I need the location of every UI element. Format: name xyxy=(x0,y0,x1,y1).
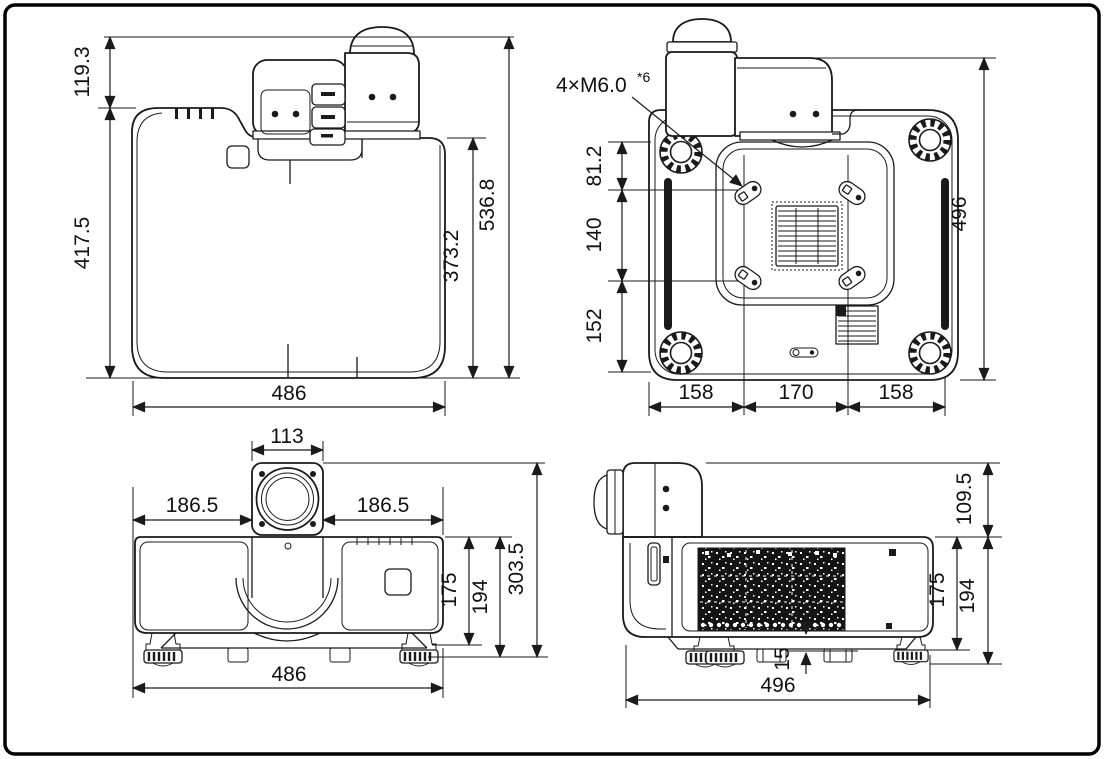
dim-label-left-section: 158 xyxy=(678,381,713,404)
dim-label-side-body-height: 175 xyxy=(926,572,949,607)
dim-label-front-height-with-feet: 194 xyxy=(469,579,492,614)
front-view-lens xyxy=(252,463,323,535)
projector-dimension-drawing: 119.3 417.5 536.8 373.2 486 xyxy=(0,0,1104,759)
bottom-slot-left xyxy=(664,178,672,330)
dim-label-overall-height: 303.5 xyxy=(505,543,528,596)
adjustable-foot xyxy=(706,651,744,667)
foot-ring xyxy=(909,332,951,374)
foot-ring xyxy=(909,119,951,161)
dim-label-side-depth: 496 xyxy=(760,674,795,697)
dim-label-front-body-height: 175 xyxy=(438,572,461,607)
dim-label-lens-protrusion: 119.3 xyxy=(71,47,94,98)
dim-label-lens-width: 113 xyxy=(270,425,303,448)
dim-label-screw-spacing-depth: 140 xyxy=(583,217,606,252)
side-view-lens xyxy=(594,463,702,537)
dim-label-top-width: 486 xyxy=(271,382,306,405)
side-vent-grille xyxy=(698,548,845,630)
dim-label-side-height-with-feet: 194 xyxy=(956,578,979,613)
dim-label-screws-to-rear: 152 xyxy=(583,308,606,343)
dim-label-body-depth: 417.5 xyxy=(71,217,94,270)
adjustable-foot xyxy=(894,650,928,664)
screw-note-superscript: *6 xyxy=(637,69,650,85)
dim-label-left-of-lens: 186.5 xyxy=(166,494,219,517)
dim-label-overall-depth: 536.8 xyxy=(476,179,499,232)
adjustable-foot xyxy=(144,650,182,666)
dim-label-front-to-screws: 81.2 xyxy=(583,146,606,187)
dim-label-rear-depth: 373.2 xyxy=(440,230,463,283)
foot-ring xyxy=(660,332,702,374)
dim-label-lens-rise: 109.5 xyxy=(953,473,976,526)
dim-label-front-width: 486 xyxy=(271,663,306,686)
dim-label-bottom-overall-depth: 496 xyxy=(948,196,971,231)
dim-label-screw-spacing-width: 170 xyxy=(778,381,813,404)
drawing-canvas: 119.3 417.5 536.8 373.2 486 xyxy=(0,0,1104,759)
dim-label-right-of-lens: 186.5 xyxy=(357,494,410,517)
dim-label-right-section: 158 xyxy=(878,381,913,404)
dim-label-foot-height: 15 xyxy=(771,647,794,670)
adjustable-foot xyxy=(400,650,438,666)
screw-note-label: 4×M6.0 xyxy=(556,74,627,97)
